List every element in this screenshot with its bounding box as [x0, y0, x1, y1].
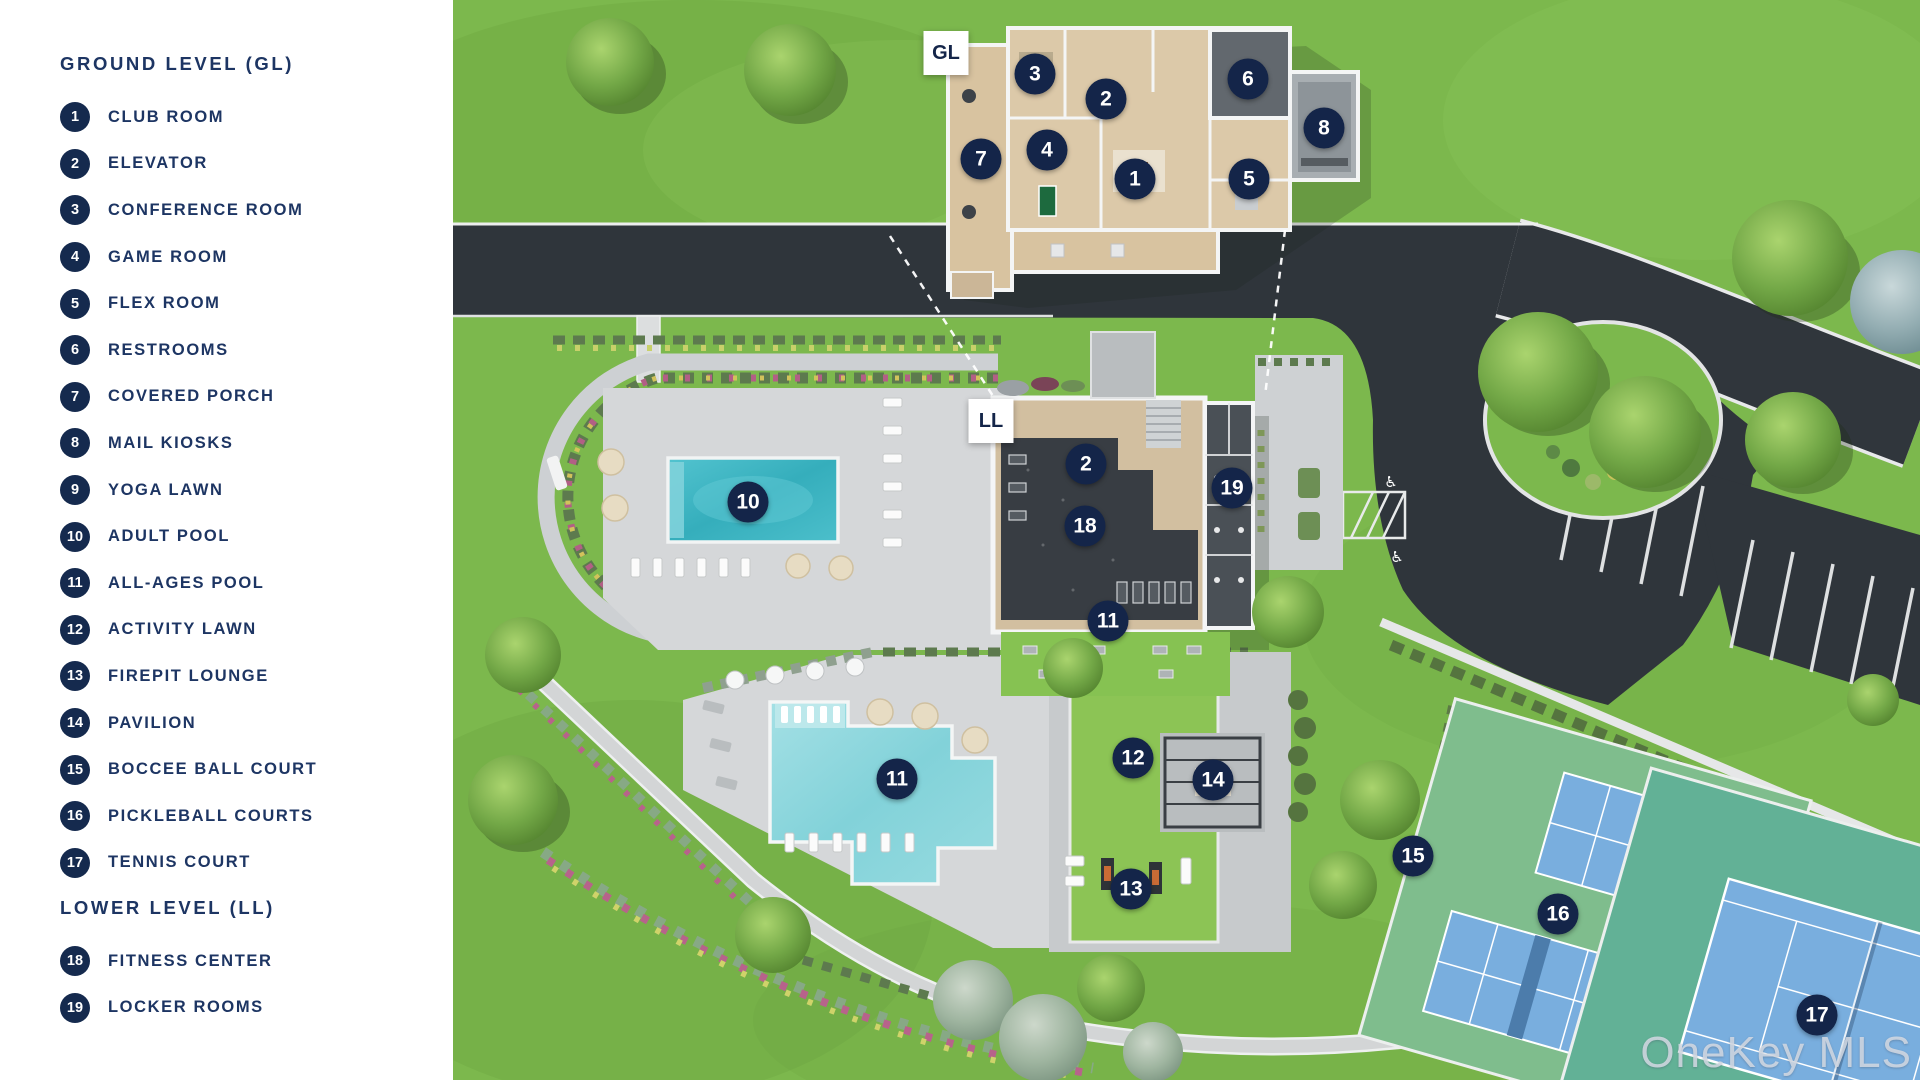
- site-plan-map: ♿ ♿: [453, 0, 1920, 1080]
- legend-item-label: ACTIVITY LAWN: [108, 620, 257, 639]
- legend-item-number: 16: [60, 801, 90, 831]
- map-marker-12: 12: [1113, 738, 1154, 779]
- legend-item-number: 5: [60, 289, 90, 319]
- legend-sidebar: GROUND LEVEL (GL)1CLUB ROOM2ELEVATOR3CON…: [0, 0, 453, 1080]
- legend-item-number: 14: [60, 708, 90, 738]
- legend-section-title: GROUND LEVEL (GL): [60, 50, 453, 78]
- legend-item-number: 19: [60, 993, 90, 1023]
- legend-item-label: BOCCEE BALL COURT: [108, 760, 317, 779]
- legend-item-number: 12: [60, 615, 90, 645]
- legend-item-13: 13FIREPIT LOUNGE: [60, 653, 453, 700]
- legend-item-15: 15BOCCEE BALL COURT: [60, 746, 453, 793]
- legend-item-label: PAVILION: [108, 714, 196, 733]
- legend-item-label: LOCKER ROOMS: [108, 998, 264, 1017]
- legend-item-11: 11ALL-AGES POOL: [60, 560, 453, 607]
- legend-item-8: 8MAIL KIOSKS: [60, 420, 453, 467]
- legend-item-label: COVERED PORCH: [108, 387, 275, 406]
- map-marker-14: 14: [1193, 760, 1234, 801]
- legend-item-4: 4GAME ROOM: [60, 234, 453, 281]
- map-marker-10: 10: [728, 482, 769, 523]
- legend-item-number: 10: [60, 522, 90, 552]
- legend-item-number: 11: [60, 568, 90, 598]
- legend-item-16: 16PICKLEBALL COURTS: [60, 793, 453, 840]
- legend-item-label: PICKLEBALL COURTS: [108, 807, 314, 826]
- legend-item-label: FIREPIT LOUNGE: [108, 667, 269, 686]
- legend-item-6: 6RESTROOMS: [60, 327, 453, 374]
- legend-item-label: RESTROOMS: [108, 341, 229, 360]
- legend-item-number: 17: [60, 848, 90, 878]
- legend-item-number: 13: [60, 661, 90, 691]
- legend-item-number: 7: [60, 382, 90, 412]
- map-marker-16: 16: [1538, 894, 1579, 935]
- legend-item-label: CLUB ROOM: [108, 108, 224, 127]
- legend-item-7: 7COVERED PORCH: [60, 374, 453, 421]
- legend-item-18: 18FITNESS CENTER: [60, 938, 453, 985]
- legend-item-label: GAME ROOM: [108, 248, 228, 267]
- legend-item-label: TENNIS COURT: [108, 853, 251, 872]
- legend-item-2: 2ELEVATOR: [60, 141, 453, 188]
- legend-item-label: CONFERENCE ROOM: [108, 201, 303, 220]
- legend-item-number: 2: [60, 149, 90, 179]
- legend-item-label: FLEX ROOM: [108, 294, 220, 313]
- map-marker-3: 3: [1015, 54, 1056, 95]
- map-marker-4: 4: [1027, 130, 1068, 171]
- marker-layer: GLLL1234567821918111011121413151617: [453, 0, 1920, 1080]
- map-marker-7: 7: [961, 139, 1002, 180]
- map-marker-19: 19: [1212, 468, 1253, 509]
- legend-item-17: 17TENNIS COURT: [60, 840, 453, 887]
- watermark: OneKey MLS: [1640, 1028, 1912, 1078]
- map-marker-2: 2: [1066, 444, 1107, 485]
- level-label-ll: LL: [969, 399, 1014, 443]
- legend-item-9: 9YOGA LAWN: [60, 467, 453, 514]
- legend-item-number: 6: [60, 335, 90, 365]
- map-marker-13: 13: [1111, 869, 1152, 910]
- legend-item-number: 8: [60, 428, 90, 458]
- legend-item-number: 3: [60, 195, 90, 225]
- legend-item-14: 14PAVILION: [60, 700, 453, 747]
- legend-item-label: FITNESS CENTER: [108, 952, 273, 971]
- legend-item-label: ALL-AGES POOL: [108, 574, 264, 593]
- legend-item-number: 18: [60, 946, 90, 976]
- map-marker-1: 1: [1115, 159, 1156, 200]
- legend-item-12: 12ACTIVITY LAWN: [60, 607, 453, 654]
- site-plan-page: GROUND LEVEL (GL)1CLUB ROOM2ELEVATOR3CON…: [0, 0, 1920, 1080]
- map-marker-5: 5: [1229, 159, 1270, 200]
- legend-item-5: 5FLEX ROOM: [60, 280, 453, 327]
- legend-item-label: ELEVATOR: [108, 154, 208, 173]
- legend-item-number: 1: [60, 102, 90, 132]
- map-marker-8: 8: [1304, 108, 1345, 149]
- legend-item-3: 3CONFERENCE ROOM: [60, 187, 453, 234]
- legend-item-10: 10ADULT POOL: [60, 513, 453, 560]
- legend-item-number: 9: [60, 475, 90, 505]
- map-marker-18: 18: [1065, 506, 1106, 547]
- level-label-gl: GL: [924, 31, 969, 75]
- legend-item-label: ADULT POOL: [108, 527, 230, 546]
- legend-item-number: 15: [60, 755, 90, 785]
- legend: GROUND LEVEL (GL)1CLUB ROOM2ELEVATOR3CON…: [0, 0, 453, 1031]
- legend-item-label: MAIL KIOSKS: [108, 434, 233, 453]
- map-marker-11: 11: [877, 759, 918, 800]
- legend-item-1: 1CLUB ROOM: [60, 94, 453, 141]
- legend-item-19: 19LOCKER ROOMS: [60, 985, 453, 1032]
- legend-item-number: 4: [60, 242, 90, 272]
- map-marker-11: 11: [1088, 601, 1129, 642]
- map-marker-6: 6: [1228, 59, 1269, 100]
- map-marker-2: 2: [1086, 79, 1127, 120]
- legend-item-label: YOGA LAWN: [108, 481, 224, 500]
- legend-section-title: LOWER LEVEL (LL): [60, 894, 453, 922]
- map-marker-15: 15: [1393, 836, 1434, 877]
